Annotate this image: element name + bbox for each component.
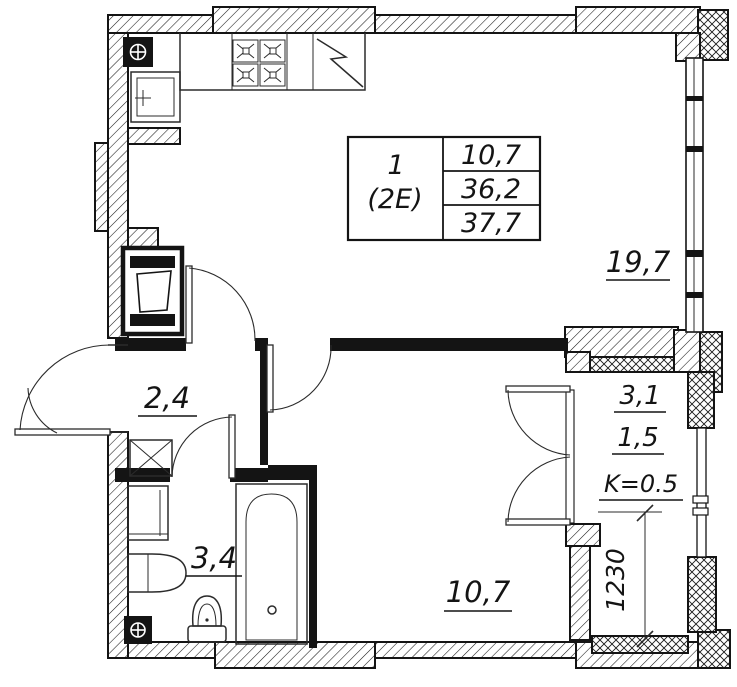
area-row-3: 37,7 bbox=[461, 208, 521, 239]
apartment-info-table: 1 (2E) 10,7 36,2 37,7 bbox=[348, 137, 540, 240]
ventilation-grille-bath-icon bbox=[124, 616, 152, 644]
bathtub-icon bbox=[236, 484, 307, 644]
loggia-dimension: 1230 bbox=[598, 505, 662, 647]
loggia-glazing bbox=[693, 428, 708, 557]
living-area-label: 19,7 bbox=[606, 245, 671, 279]
kitchen-door bbox=[186, 266, 255, 343]
loggia-coefficient-label: K=0.5 bbox=[604, 470, 678, 498]
area-row-1: 10,7 bbox=[461, 140, 521, 171]
gas-stove-icon bbox=[233, 40, 285, 86]
bathroom-door bbox=[172, 415, 235, 478]
french-balcony-door bbox=[506, 386, 570, 525]
bathroom-area-label: 3,4 bbox=[191, 541, 237, 575]
floor-plan-canvas: 1230 1 (2E) 10,7 36,2 37,7 19,7 2,4 3,4 … bbox=[0, 0, 737, 687]
ventilation-grille-kitchen-icon bbox=[123, 37, 153, 67]
apartment-type: (2E) bbox=[367, 184, 422, 215]
dimension-value: 1230 bbox=[601, 548, 630, 612]
refrigerator-icon bbox=[317, 39, 363, 87]
apartment-number: 1 bbox=[387, 150, 404, 181]
balcony-door-frame bbox=[566, 390, 574, 523]
living-room-window bbox=[686, 58, 703, 332]
bedroom-area-label: 10,7 bbox=[446, 575, 511, 609]
hall-area-label: 2,4 bbox=[144, 381, 190, 415]
toilet-icon bbox=[188, 596, 226, 642]
loggia-area-full-label: 3,1 bbox=[619, 381, 660, 411]
bedroom-door bbox=[267, 345, 331, 412]
kitchen-sink-icon bbox=[131, 72, 180, 122]
entrance-door bbox=[15, 345, 128, 435]
washing-machine-icon bbox=[128, 486, 168, 540]
area-row-2: 36,2 bbox=[461, 174, 521, 205]
wash-basin-icon bbox=[128, 554, 186, 592]
floor-plan: 1230 1 (2E) 10,7 36,2 37,7 19,7 2,4 3,4 … bbox=[0, 0, 737, 687]
loggia-area-counted-label: 1,5 bbox=[617, 423, 658, 453]
duct-shaft bbox=[123, 248, 182, 334]
